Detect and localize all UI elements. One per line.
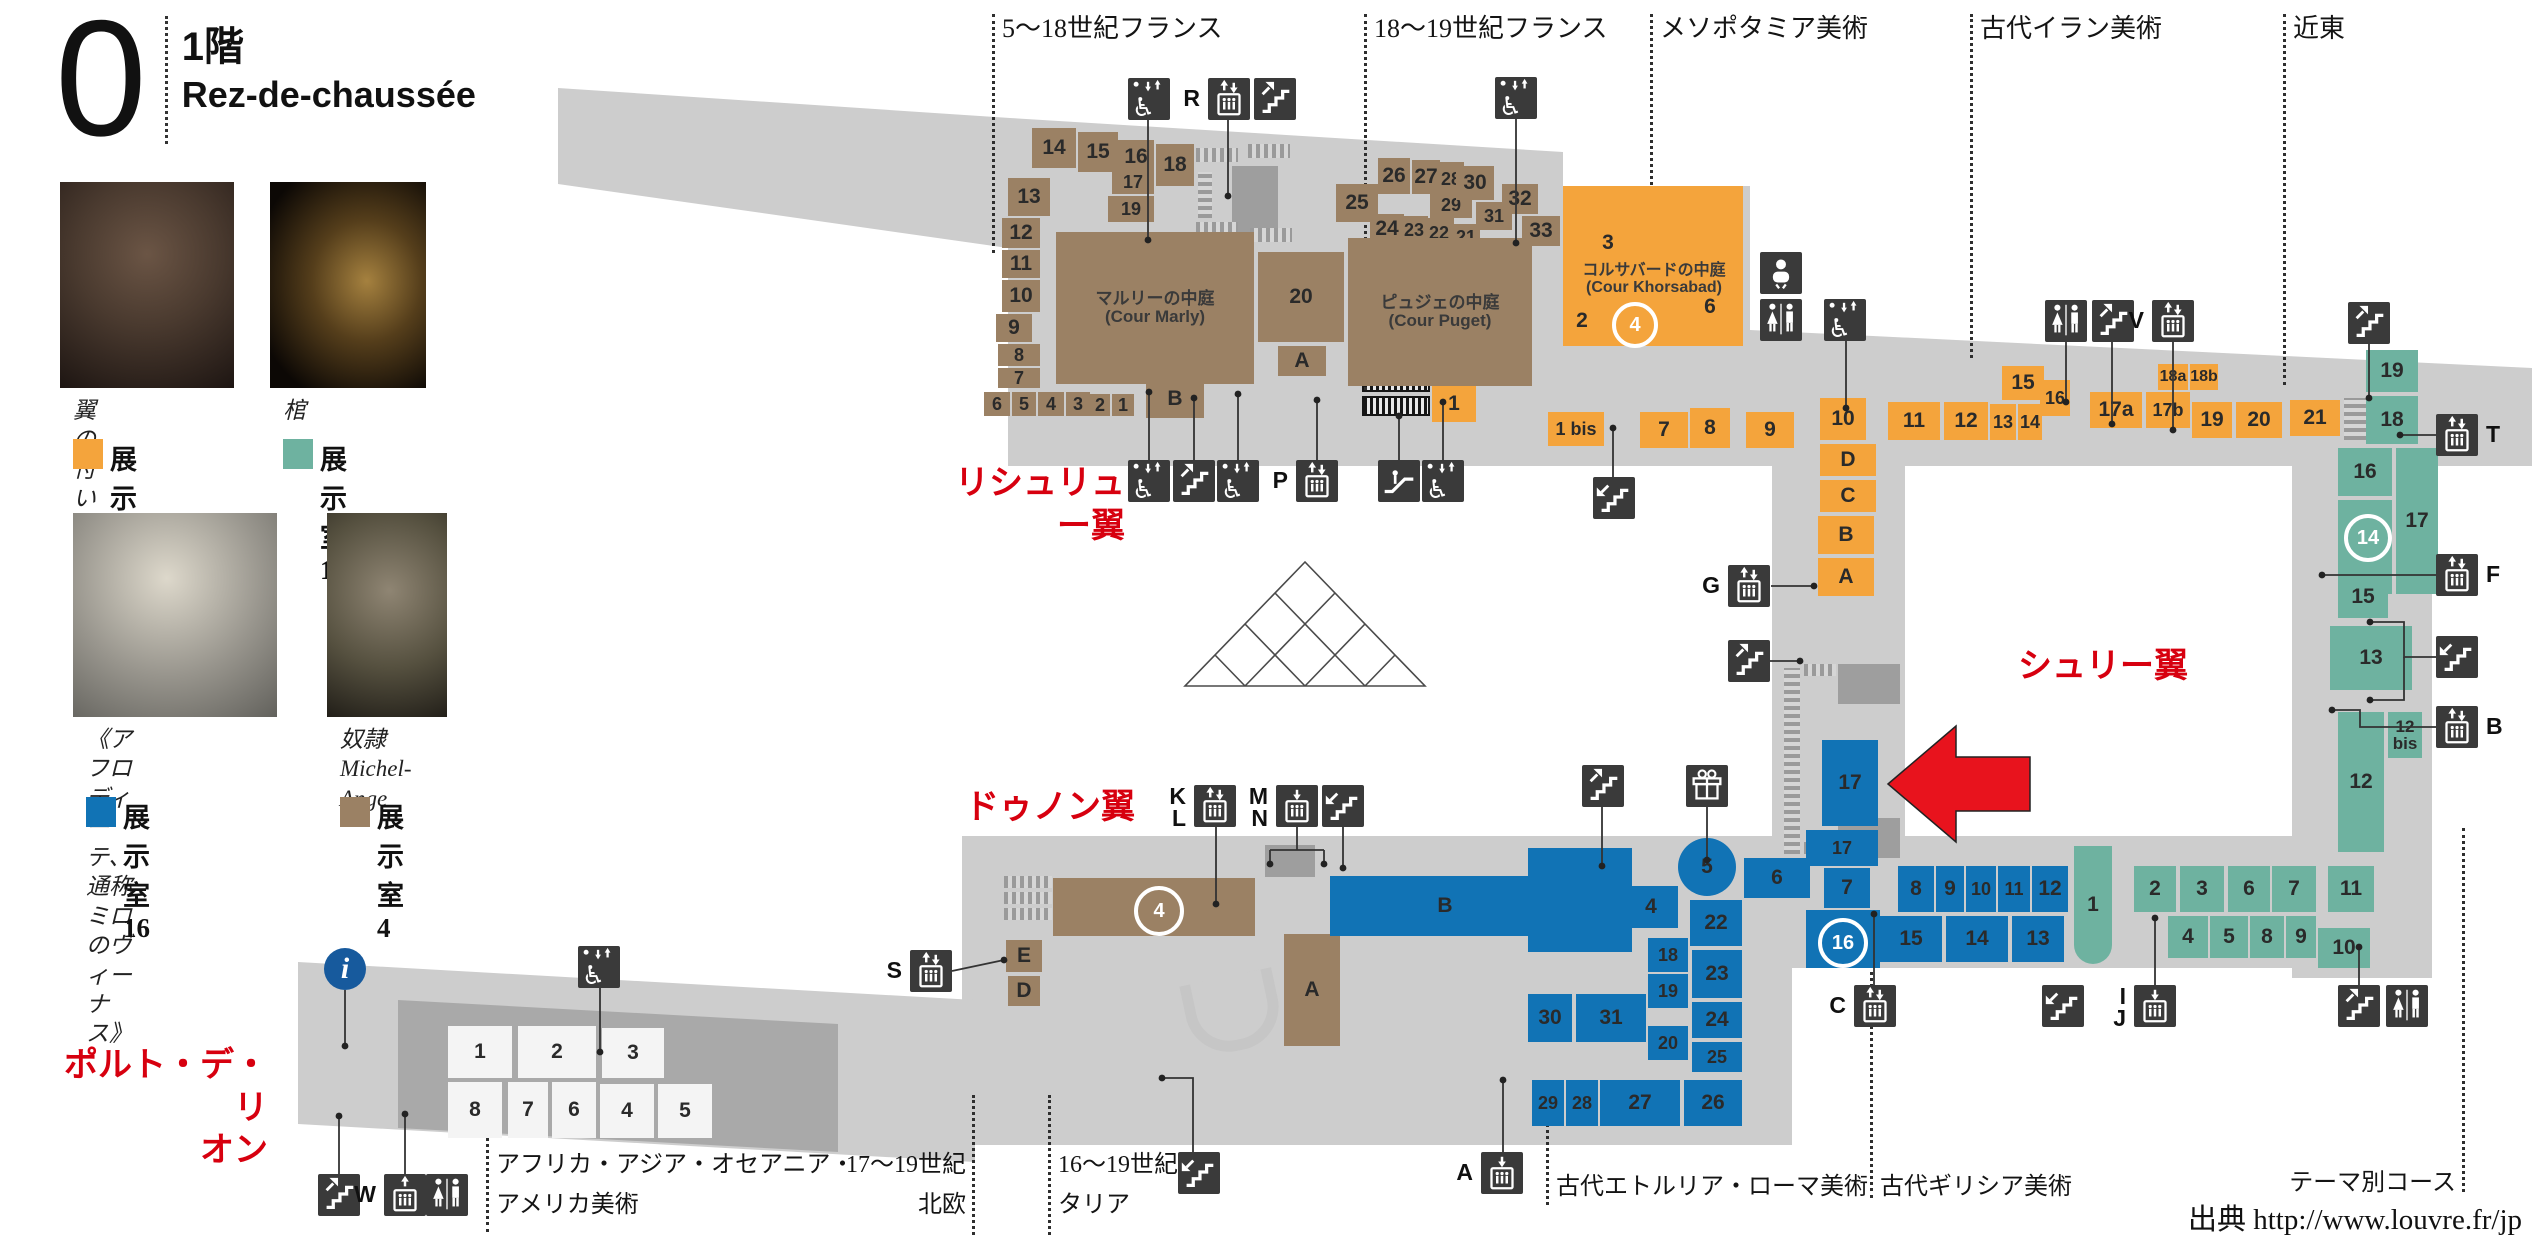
elevator-down-icon (1276, 785, 1318, 827)
room-bl-11: 11 (1998, 866, 2030, 912)
room-bl-29: 29 (1532, 1080, 1564, 1126)
icon-letter-P: P (1248, 469, 1288, 491)
room-bl-14: 14 (1946, 916, 2008, 962)
room-or-10: 10 (1820, 398, 1866, 440)
room-br-4: 4 (1038, 392, 1064, 416)
wing-label: ドゥノン翼 (965, 786, 1165, 829)
dotted-guide (2283, 14, 2286, 385)
room-or-15: 15 (2002, 366, 2044, 400)
room-or-2: 2 (1570, 308, 1594, 334)
room-br-32: 32 (1502, 184, 1538, 214)
room-or-18a: 18a (2158, 364, 2188, 390)
elevator-up-icon (384, 1174, 426, 1216)
stair-structure (1784, 668, 1800, 854)
stair-structure (1804, 664, 1836, 676)
room-or-7: 7 (1640, 412, 1688, 448)
elevator-icon (2436, 706, 2478, 748)
room-tl-5: 5 (2210, 916, 2248, 958)
svg-text:♿: ♿ (1221, 475, 1244, 502)
wheelchair-elevator-icon: ♿ (1422, 460, 1464, 502)
room-or-1 bis: 1 bis (1548, 412, 1604, 446)
wheelchair-elevator-icon: ♿ (578, 946, 620, 988)
room-tl-4: 4 (2168, 916, 2208, 958)
room-bl-9: 9 (1936, 866, 1964, 912)
room-bl-17: 17 (1806, 830, 1878, 866)
room-or-1: 1 (1432, 386, 1476, 422)
room-or-A: A (1818, 558, 1874, 596)
stairs-up-icon (2348, 302, 2390, 344)
section-label: 16〜19世紀イ タリア (1058, 1146, 1278, 1225)
room-bl-18: 18 (1648, 938, 1688, 972)
room-tl-12: 12 bis (2388, 712, 2422, 758)
elevator-icon (2152, 300, 2194, 342)
icon-letter-T: T (2486, 423, 2526, 445)
escalator-icon (1378, 460, 1420, 502)
elevator-icon (910, 950, 952, 992)
room-wh-1: 1 (448, 1026, 512, 1078)
room-br-13: 13 (1008, 178, 1050, 216)
elevator-icon (2436, 414, 2478, 456)
room-or-17a: 17a (2090, 392, 2142, 428)
room-bl-26: 26 (1684, 1080, 1742, 1126)
baby-care-icon (1760, 252, 1802, 294)
artwork-photo-venus (73, 513, 277, 717)
stair-structure (1004, 892, 1052, 904)
stair-structure (1248, 144, 1290, 158)
room-or-20: 20 (2236, 402, 2282, 438)
room-bl-27: 27 (1600, 1080, 1680, 1126)
artwork-photo-coffin (270, 182, 426, 388)
floor-title-jp: 1階 (182, 14, 476, 72)
room-bl-B: B (1330, 876, 1560, 936)
floor-title-fr: Rez-de-chaussée (182, 74, 476, 116)
room-or-13: 13 (1990, 404, 2016, 440)
icon-letter-R: R (1160, 87, 1200, 109)
stairs-up-icon (1582, 765, 1624, 807)
room-bl-12: 12 (2032, 866, 2068, 912)
toilets-icon (2045, 300, 2087, 342)
stairs-up-icon (2338, 985, 2380, 1027)
room-br-8: 8 (998, 344, 1040, 366)
icon-letter-A: A (1433, 1161, 1473, 1183)
room-bl-28: 28 (1566, 1080, 1598, 1126)
room-wh-2: 2 (518, 1026, 596, 1078)
room-bl-16: 16 (1818, 918, 1868, 968)
room-tl-8: 8 (2250, 916, 2284, 958)
wing-label: リシュリュー翼 (923, 462, 1125, 547)
icon-letter-S: S (862, 959, 902, 981)
elevator-down-icon (2134, 985, 2176, 1027)
icon-letter-W: W (336, 1183, 376, 1205)
room-tl-2: 2 (2134, 866, 2176, 912)
room-br-27: 27 (1412, 160, 1440, 194)
stair-structure (1196, 148, 1238, 162)
room-tl-17: 17 (2396, 448, 2438, 594)
room-br-1: 1 (1112, 394, 1134, 416)
room-br-12: 12 (1002, 218, 1040, 248)
wheelchair-elevator-icon: ♿ (1495, 77, 1537, 119)
floor-header: 0 1階 Rez-de-chaussée (55, 8, 476, 150)
room-br-19: 19 (1108, 196, 1154, 222)
room-bl-24: 24 (1692, 1002, 1742, 1038)
room-bl-7: 7 (1824, 868, 1870, 908)
room-br-14: 14 (1032, 128, 1076, 168)
toilets-icon (426, 1174, 468, 1216)
room-or-21: 21 (2290, 400, 2340, 436)
room-wh-4: 4 (600, 1084, 654, 1138)
dotted-guide (1970, 14, 1973, 358)
stair-structure (1004, 908, 1052, 920)
elevator-icon (1296, 460, 1338, 502)
room-or-16: 16 (2040, 380, 2070, 416)
wheelchair-elevator-icon: ♿ (1824, 299, 1866, 341)
room-tl-19: 19 (2366, 350, 2418, 392)
room-or-8: 8 (1690, 408, 1730, 448)
legend-color-swatch (73, 439, 103, 469)
room-bl-area (1528, 848, 1632, 952)
room-tl-15: 15 (2338, 576, 2388, 618)
room-br-ピュジェの中庭: ピュジェの中庭 (Cour Puget) (1348, 238, 1532, 386)
room-br-2: 2 (1090, 394, 1110, 416)
legend-room-label: 展示室 4 (377, 796, 404, 944)
room-tl-12: 12 (2338, 712, 2384, 852)
room-or-14: 14 (2018, 404, 2042, 440)
stair-structure (1838, 664, 1900, 704)
room-bl-17: 17 (1822, 740, 1878, 826)
gift-shop-icon (1686, 765, 1728, 807)
artwork-caption: 棺 (283, 396, 306, 425)
room-or-17b: 17b (2146, 392, 2190, 428)
wing-label: ポルト・デ・リ オン (44, 1044, 268, 1172)
section-label: 古代ギリシア美術 (1880, 1168, 2180, 1208)
section-label: 17〜19世紀 北欧 (766, 1146, 966, 1225)
stairs-down-icon (1178, 1152, 1220, 1194)
svg-text:♿: ♿ (1828, 314, 1851, 341)
room-br-10: 10 (1002, 280, 1040, 312)
room-br-11: 11 (1002, 250, 1040, 278)
icon-letter-C: C (1806, 994, 1846, 1016)
section-label: 近東 (2293, 8, 2345, 45)
icon-letter-G: G (1680, 574, 1720, 596)
stairs-down-icon (1593, 477, 1635, 519)
stair-structure (1265, 845, 1315, 877)
room-or-B: B (1818, 516, 1874, 554)
dotted-guide (1650, 14, 1653, 215)
icon-letter-F: F (2486, 563, 2526, 585)
room-tl-6: 6 (2228, 866, 2270, 912)
louvre-floor-map-page: 14151618171913121110987654321Bマルリーの中庭 (C… (0, 0, 2536, 1240)
icon-letter-V: V (2104, 309, 2144, 331)
svg-text:♿: ♿ (582, 961, 605, 988)
room-tl-3: 3 (2180, 866, 2224, 912)
room-br-4: 4 (1134, 886, 1184, 936)
toilets-icon (2386, 985, 2428, 1027)
room-tl-13: 13 (2330, 626, 2412, 690)
elevator-icon (1208, 78, 1250, 120)
room-or-4: 4 (1612, 302, 1658, 348)
room-wh-5: 5 (658, 1084, 712, 1138)
room-br-マルリーの中庭: マルリーの中庭 (Cour Marly) (1056, 232, 1254, 384)
legend-color-swatch (340, 797, 370, 827)
stairs-down-icon (2042, 985, 2084, 1027)
room-tl-14: 14 (2344, 514, 2392, 562)
room-or-11: 11 (1888, 402, 1940, 440)
icon-letter-IJ: I J (2086, 985, 2126, 1029)
dotted-guide (972, 1095, 975, 1235)
legend-color-swatch (86, 797, 116, 827)
room-br-17: 17 (1112, 170, 1154, 194)
room-br-E: E (1006, 940, 1042, 972)
room-br-18: 18 (1156, 144, 1194, 186)
wheelchair-elevator-icon: ♿ (1128, 460, 1170, 502)
room-br-30: 30 (1456, 166, 1494, 200)
legend-room-label: 展示室 16 (123, 796, 150, 944)
room-tl-11: 11 (2328, 866, 2374, 912)
room-tl-1: 1 (2074, 846, 2112, 964)
room-bl-20: 20 (1648, 1026, 1688, 1060)
stairs-up-icon (1728, 640, 1770, 682)
room-wh-6: 6 (552, 1082, 596, 1138)
room-bl-15: 15 (1880, 916, 1942, 962)
stair-structure (1250, 228, 1292, 242)
room-bl-31: 31 (1576, 994, 1646, 1042)
information-icon: i (324, 948, 366, 990)
stair-structure (1198, 172, 1212, 218)
stairs-down-icon (1322, 785, 1364, 827)
elevator-icon (1854, 985, 1896, 1027)
room-br-D: D (1008, 976, 1040, 1006)
section-label: 古代イラン美術 (1980, 8, 2162, 45)
section-label: 18〜19世紀フランス (1374, 8, 1607, 45)
room-or-D: D (1820, 444, 1876, 476)
room-br-3: 3 (1066, 392, 1090, 416)
room-br-5: 5 (1012, 392, 1036, 416)
icon-letter-KL: K L (1146, 785, 1186, 829)
room-br-7: 7 (998, 368, 1040, 388)
room-br-26: 26 (1378, 158, 1410, 194)
room-bl-10: 10 (1966, 866, 1996, 912)
stairs-up-icon (1254, 78, 1296, 120)
room-bl-23: 23 (1692, 950, 1742, 998)
room-or-6: 6 (1698, 294, 1722, 320)
room-or-3: 3 (1596, 230, 1620, 256)
elevator-down-icon (1481, 1152, 1523, 1194)
section-label: 5〜18世紀フランス (1002, 8, 1222, 45)
room-wh-3: 3 (602, 1028, 664, 1078)
stair-structure (1004, 876, 1052, 888)
icon-letter-MN: M N (1228, 785, 1268, 829)
room-or-12: 12 (1944, 402, 1988, 440)
room-br-16: 16 (1118, 140, 1154, 174)
room-tl-16: 16 (2338, 448, 2392, 496)
artwork-photo-slave (327, 513, 447, 717)
room-bl-5: 5 (1678, 838, 1736, 896)
wing-label: シュリー翼 (2018, 645, 2218, 688)
svg-text:♿: ♿ (1426, 475, 1449, 502)
room-or-19: 19 (2192, 402, 2232, 438)
room-bl-6: 6 (1744, 858, 1810, 898)
room-tl-10: 10 (2318, 928, 2370, 968)
section-label: メソポタミア美術 (1660, 8, 1868, 45)
room-bl-4: 4 (1624, 886, 1678, 928)
room-bl-22: 22 (1690, 900, 1742, 946)
room-bl-8: 8 (1898, 866, 1934, 912)
dotted-guide (1048, 1095, 1051, 1235)
header-divider (165, 16, 168, 144)
room-bl-25: 25 (1692, 1042, 1742, 1072)
svg-text:♿: ♿ (1499, 92, 1522, 119)
room-tl-9: 9 (2286, 916, 2316, 958)
room-wh-8: 8 (448, 1082, 502, 1138)
stairs-up-icon (1173, 460, 1215, 502)
room-bl-30: 30 (1528, 994, 1572, 1042)
room-br-20: 20 (1258, 252, 1344, 342)
room-br-A: A (1278, 346, 1326, 376)
svg-text:♿: ♿ (1132, 475, 1155, 502)
artwork-photo-bulls (60, 182, 234, 388)
room-br-A: A (1284, 934, 1340, 1046)
elevator-icon (1728, 565, 1770, 607)
room-tl-18: 18 (2366, 396, 2418, 444)
dotted-guide (2462, 828, 2465, 1192)
room-or-18b: 18b (2190, 364, 2218, 390)
room-or-9: 9 (1746, 412, 1794, 448)
source-credit: 出典 http://www.louvre.fr/jp (2188, 1196, 2522, 1238)
room-br-15: 15 (1078, 132, 1118, 172)
room-wh-7: 7 (508, 1082, 548, 1138)
room-bl-13: 13 (2012, 916, 2064, 962)
elevator-icon (2436, 554, 2478, 596)
stairs-down-icon (2436, 636, 2478, 678)
room-tl-7: 7 (2272, 866, 2316, 912)
stair-structure (1232, 166, 1278, 234)
svg-text:♿: ♿ (1132, 93, 1155, 120)
icon-letter-B: B (2486, 715, 2526, 737)
room-or-C: C (1820, 480, 1876, 512)
room-bl-19: 19 (1648, 974, 1688, 1008)
legend-color-swatch (283, 439, 313, 469)
room-br-9: 9 (996, 314, 1032, 342)
toilets-icon (1760, 299, 1802, 341)
room-br-B: B (1146, 380, 1204, 418)
room-br-6: 6 (984, 392, 1010, 416)
dotted-guide (992, 14, 995, 253)
floor-number: 0 (55, 8, 147, 150)
stair-structure (1362, 396, 1430, 416)
